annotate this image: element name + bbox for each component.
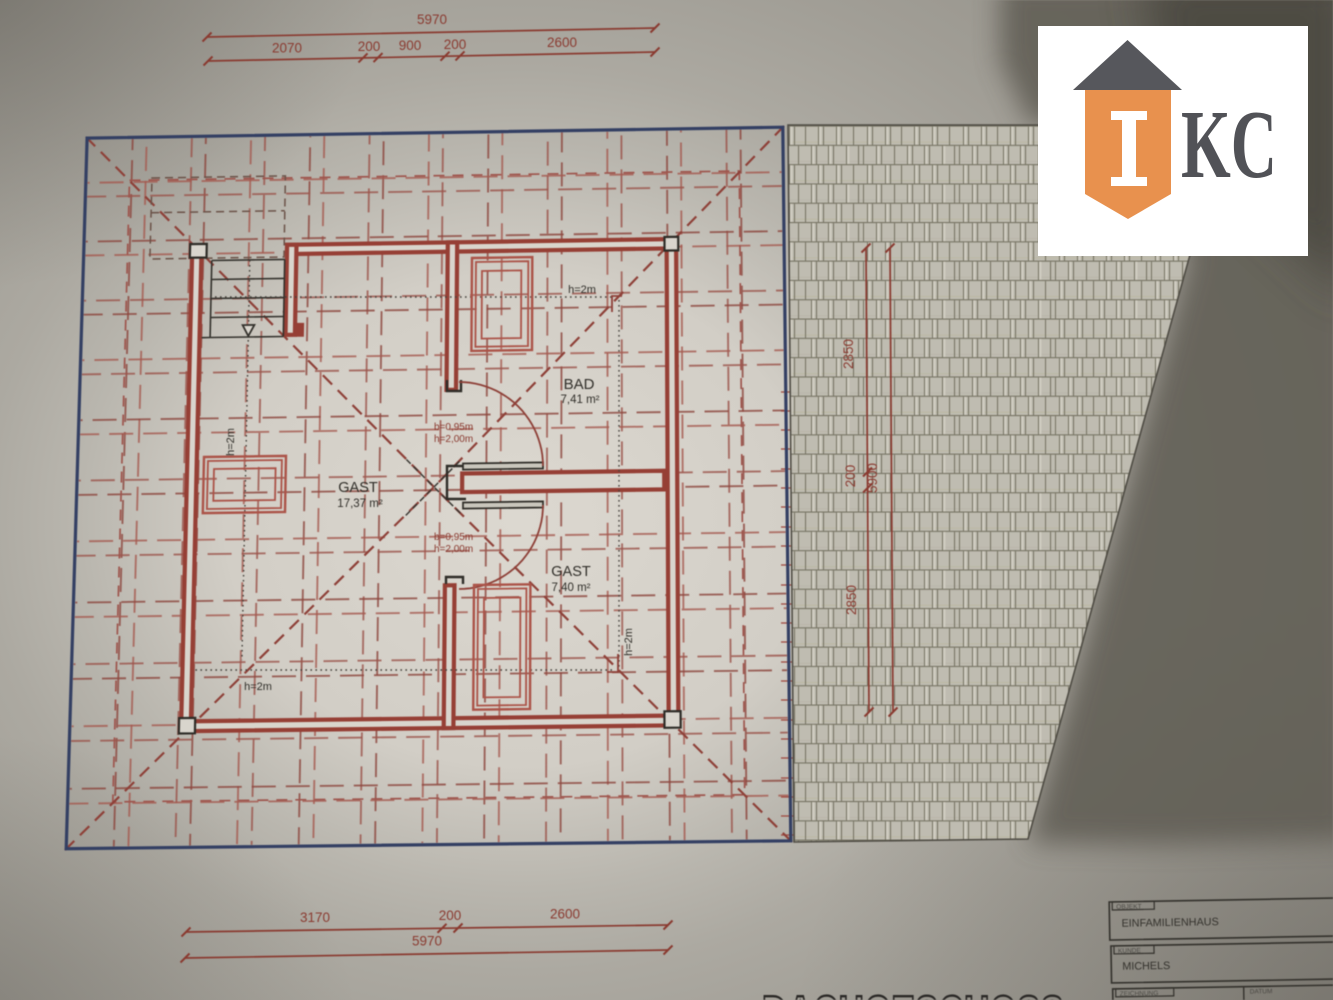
svg-text:KC: KC xyxy=(1181,91,1277,198)
